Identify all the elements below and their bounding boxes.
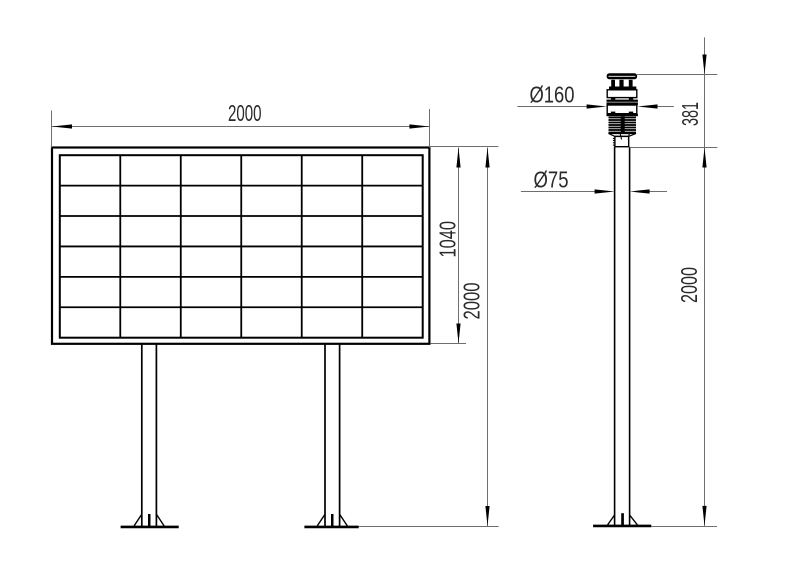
svg-text:2000: 2000 bbox=[459, 283, 485, 320]
svg-text:381: 381 bbox=[677, 102, 703, 126]
svg-text:Ø160: Ø160 bbox=[530, 82, 575, 108]
svg-text:Ø75: Ø75 bbox=[534, 167, 569, 193]
svg-text:2000: 2000 bbox=[676, 267, 702, 303]
svg-text:1040: 1040 bbox=[435, 221, 461, 258]
svg-text:2000: 2000 bbox=[228, 100, 262, 126]
